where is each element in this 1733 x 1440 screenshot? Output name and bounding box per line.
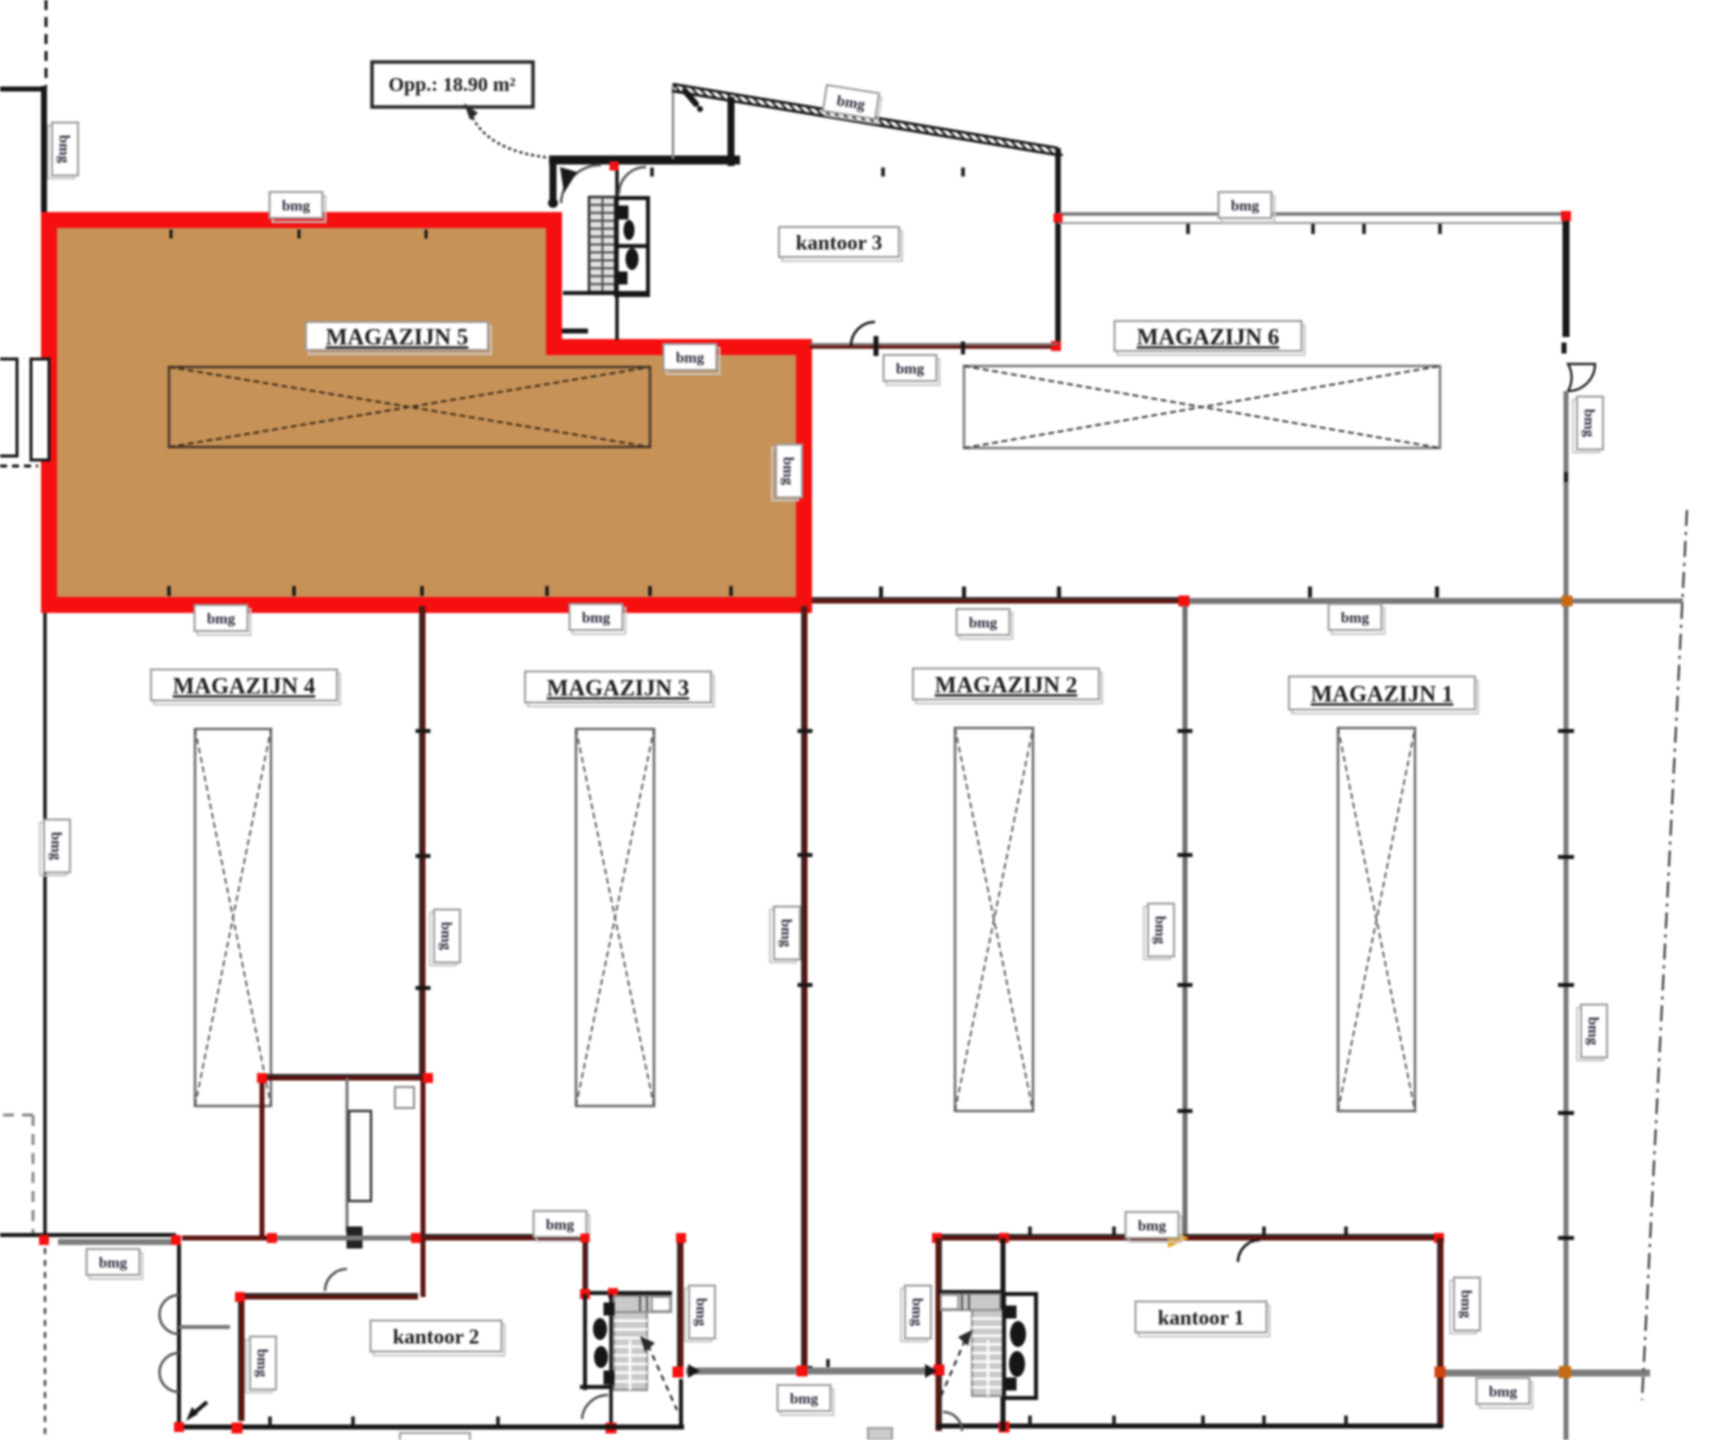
svg-text:bmg: bmg xyxy=(1489,1384,1518,1400)
svg-text:MAGAZIJN 2: MAGAZIJN 2 xyxy=(935,672,1077,697)
svg-text:kantoor 1: kantoor 1 xyxy=(1158,1306,1245,1330)
svg-text:bmg: bmg xyxy=(909,1298,925,1327)
svg-text:bmg: bmg xyxy=(1585,1017,1601,1046)
svg-text:bmg: bmg xyxy=(99,1255,128,1271)
svg-text:bmg: bmg xyxy=(1458,1290,1474,1319)
svg-text:bmg: bmg xyxy=(778,919,794,948)
svg-text:Opp.: 18.90 m²: Opp.: 18.90 m² xyxy=(388,74,515,96)
svg-text:bmg: bmg xyxy=(780,457,796,486)
svg-text:bmg: bmg xyxy=(896,361,925,377)
svg-text:bmg: bmg xyxy=(1581,409,1597,438)
svg-text:MAGAZIJN 4: MAGAZIJN 4 xyxy=(173,673,316,698)
svg-text:bmg: bmg xyxy=(56,135,72,164)
svg-text:MAGAZIJN 1: MAGAZIJN 1 xyxy=(1311,681,1453,706)
svg-text:bmg: bmg xyxy=(1231,198,1260,214)
svg-text:MAGAZIJN 6: MAGAZIJN 6 xyxy=(1137,324,1279,349)
svg-text:MAGAZIJN 5: MAGAZIJN 5 xyxy=(326,324,468,349)
svg-text:bmg: bmg xyxy=(1152,916,1168,945)
svg-text:bmg: bmg xyxy=(969,615,998,631)
svg-text:bmg: bmg xyxy=(207,611,236,627)
svg-text:bmg: bmg xyxy=(438,922,454,951)
svg-text:bmg: bmg xyxy=(676,350,705,366)
svg-text:bmg: bmg xyxy=(48,832,64,861)
svg-text:bmg: bmg xyxy=(582,610,611,626)
svg-text:bmg: bmg xyxy=(254,1349,270,1378)
svg-text:MAGAZIJN 3: MAGAZIJN 3 xyxy=(547,675,689,700)
svg-text:kantoor 2: kantoor 2 xyxy=(393,1325,480,1349)
svg-text:bmg: bmg xyxy=(790,1391,819,1407)
svg-text:bmg: bmg xyxy=(546,1217,575,1233)
svg-text:bmg: bmg xyxy=(1341,610,1370,626)
svg-text:kantoor 3: kantoor 3 xyxy=(796,231,883,255)
svg-text:bmg: bmg xyxy=(693,1298,709,1327)
svg-text:bmg: bmg xyxy=(1138,1218,1167,1234)
svg-text:bmg: bmg xyxy=(282,198,311,214)
